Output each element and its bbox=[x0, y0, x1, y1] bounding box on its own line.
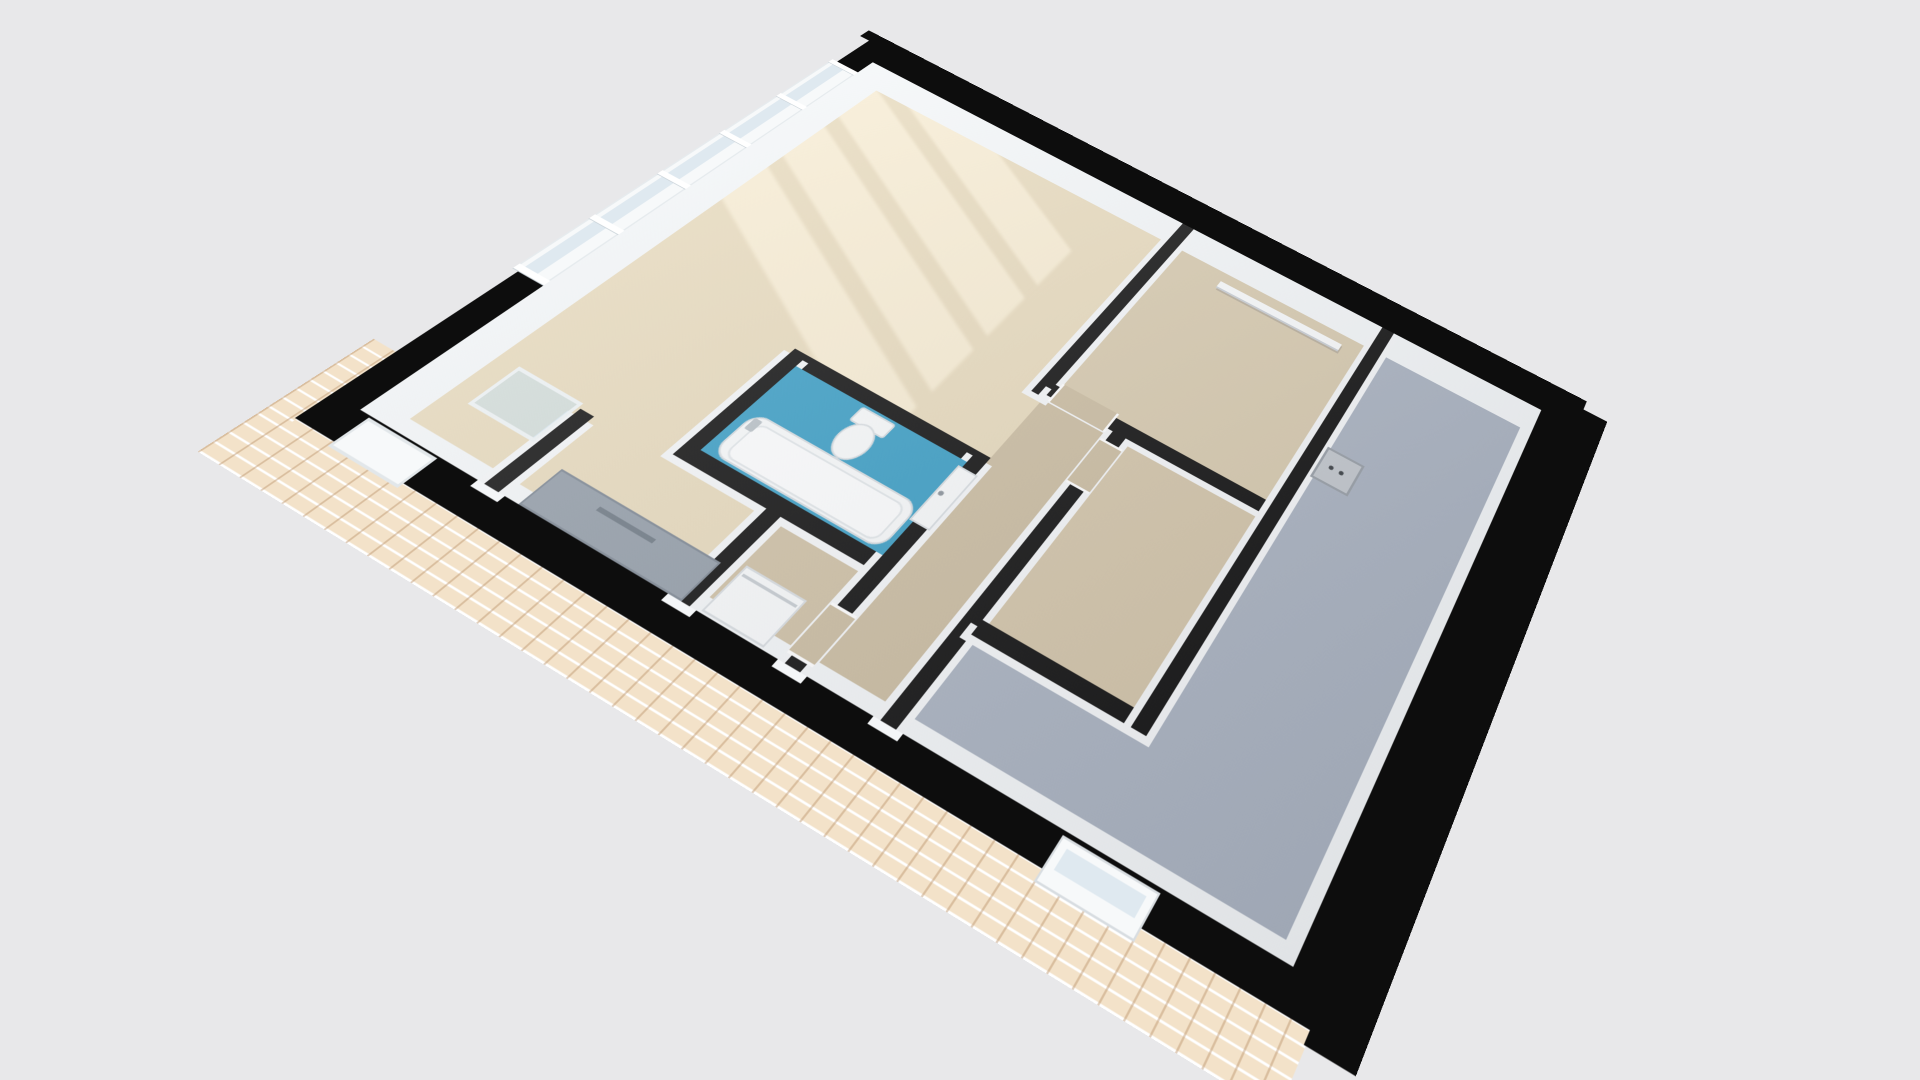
screenshot-stage bbox=[0, 0, 1920, 1080]
floor-plan bbox=[295, 40, 1573, 1030]
